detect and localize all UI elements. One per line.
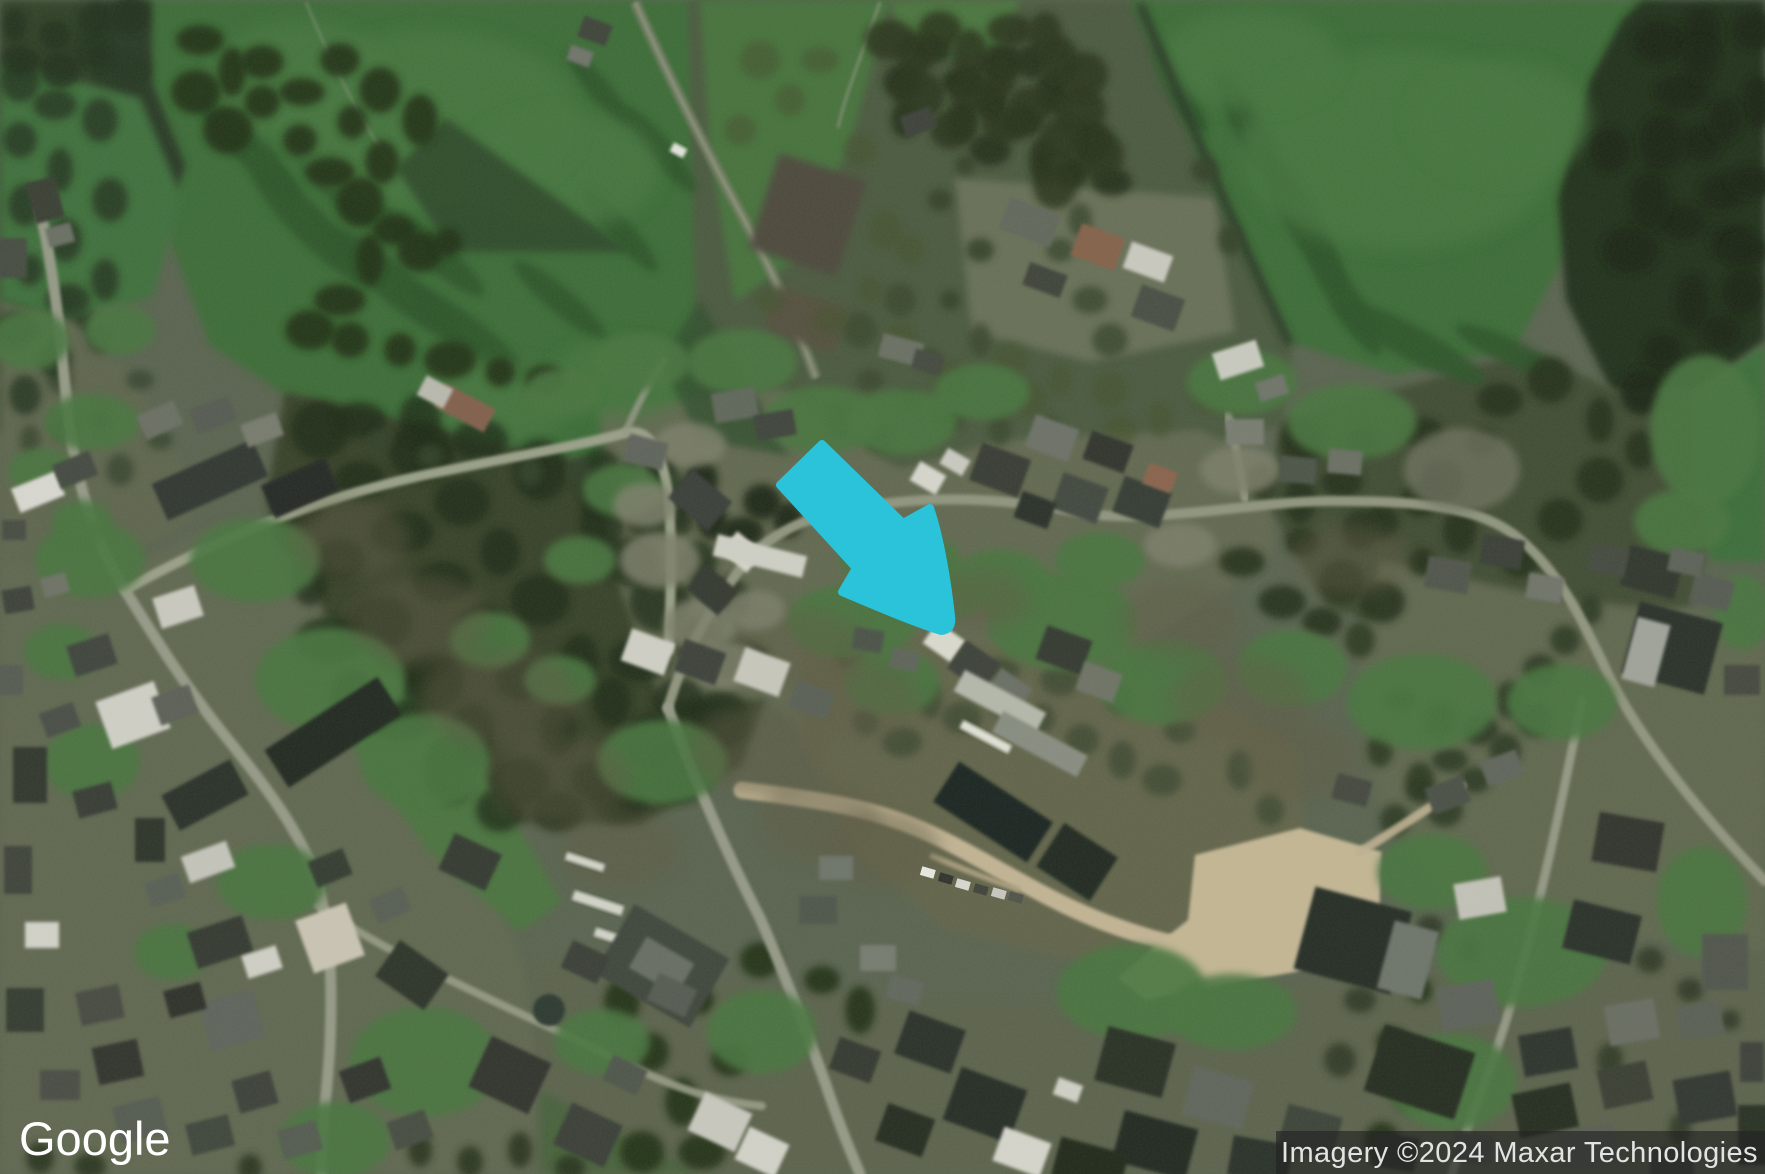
svg-text:Imagery ©2024 Maxar Technologi: Imagery ©2024 Maxar Technologies xyxy=(1281,1137,1758,1169)
svg-text:Google: Google xyxy=(19,1112,171,1165)
